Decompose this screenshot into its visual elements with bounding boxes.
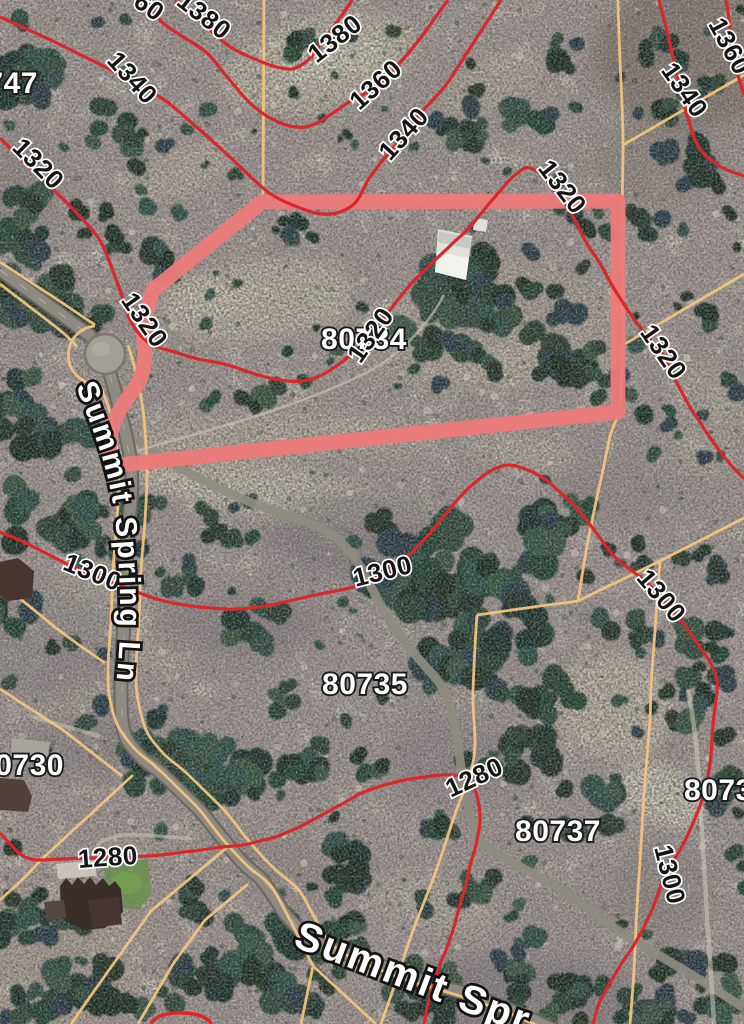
svg-text:80747: 80747 (0, 67, 38, 100)
svg-text:1280: 1280 (77, 840, 139, 874)
svg-text:80735: 80735 (322, 668, 408, 701)
svg-text:80737: 80737 (515, 815, 601, 848)
svg-text:80730: 80730 (0, 749, 64, 782)
svg-text:80731: 80731 (684, 774, 744, 807)
